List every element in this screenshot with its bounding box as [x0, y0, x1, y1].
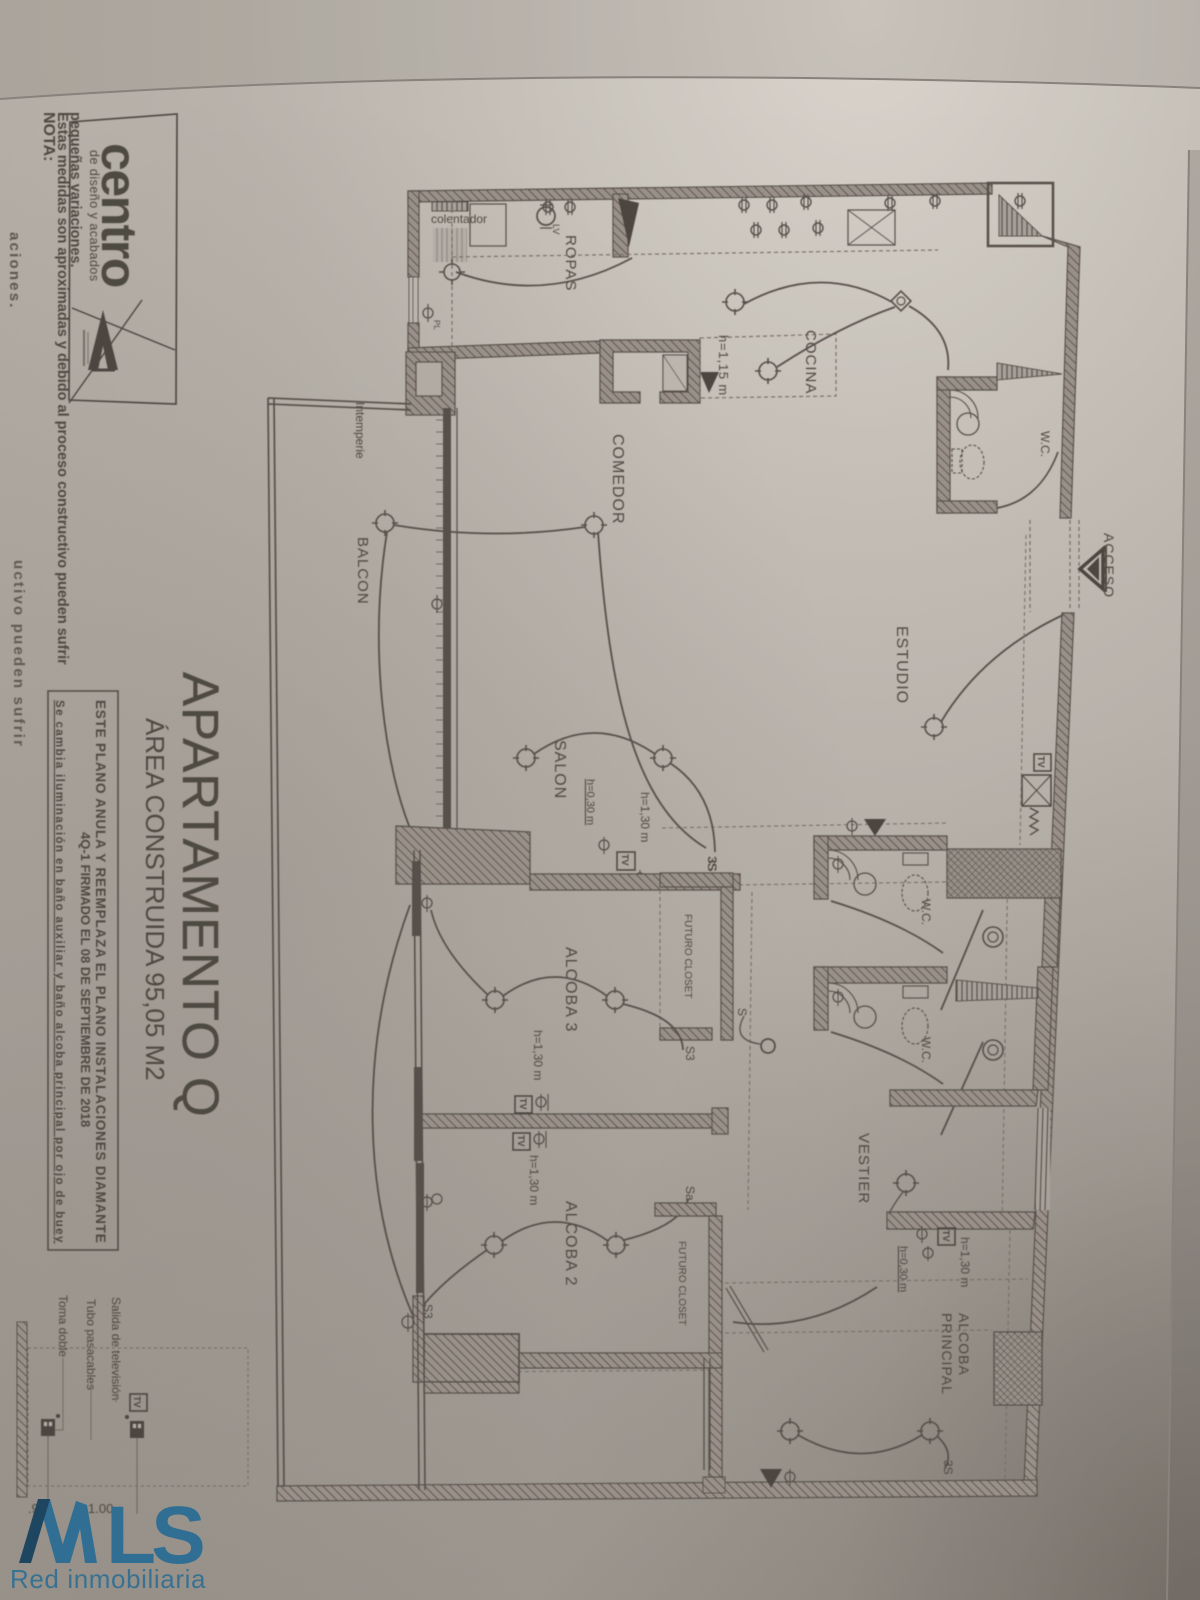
svg-text:Red inmobiliaria: Red inmobiliaria: [10, 1564, 206, 1594]
